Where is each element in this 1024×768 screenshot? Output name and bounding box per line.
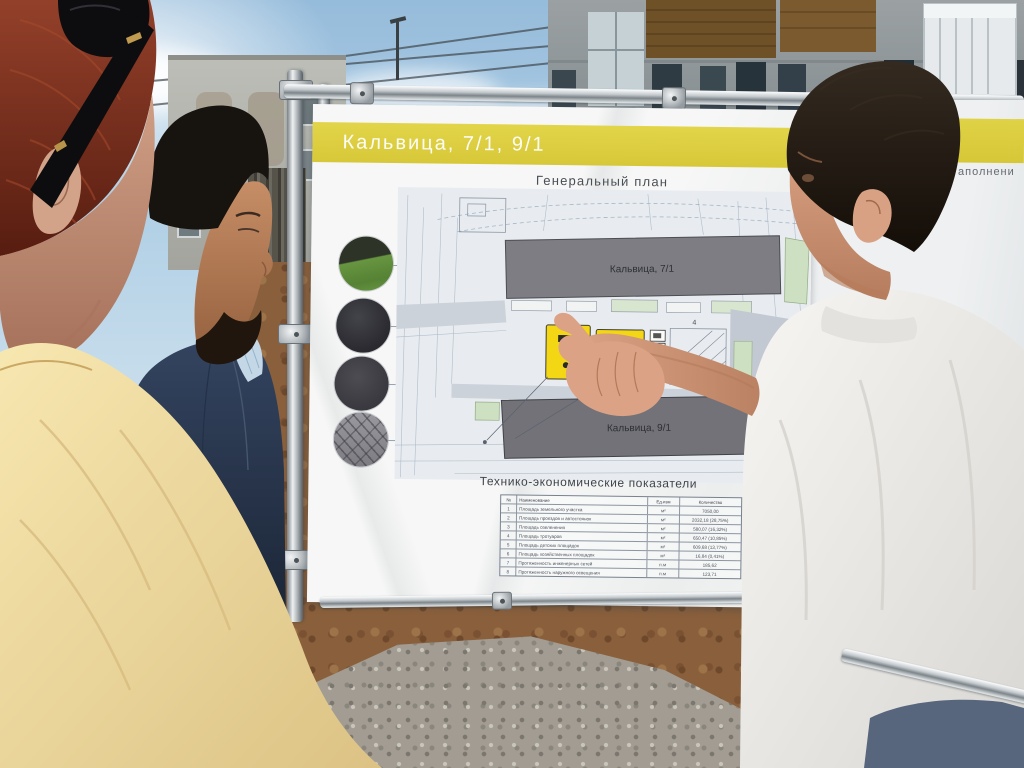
people	[0, 0, 1024, 768]
construction-site-photo: аполнени Кальвица, 7/1, 9/1 Генеральный …	[0, 0, 1024, 768]
man-pointing	[554, 61, 1024, 768]
